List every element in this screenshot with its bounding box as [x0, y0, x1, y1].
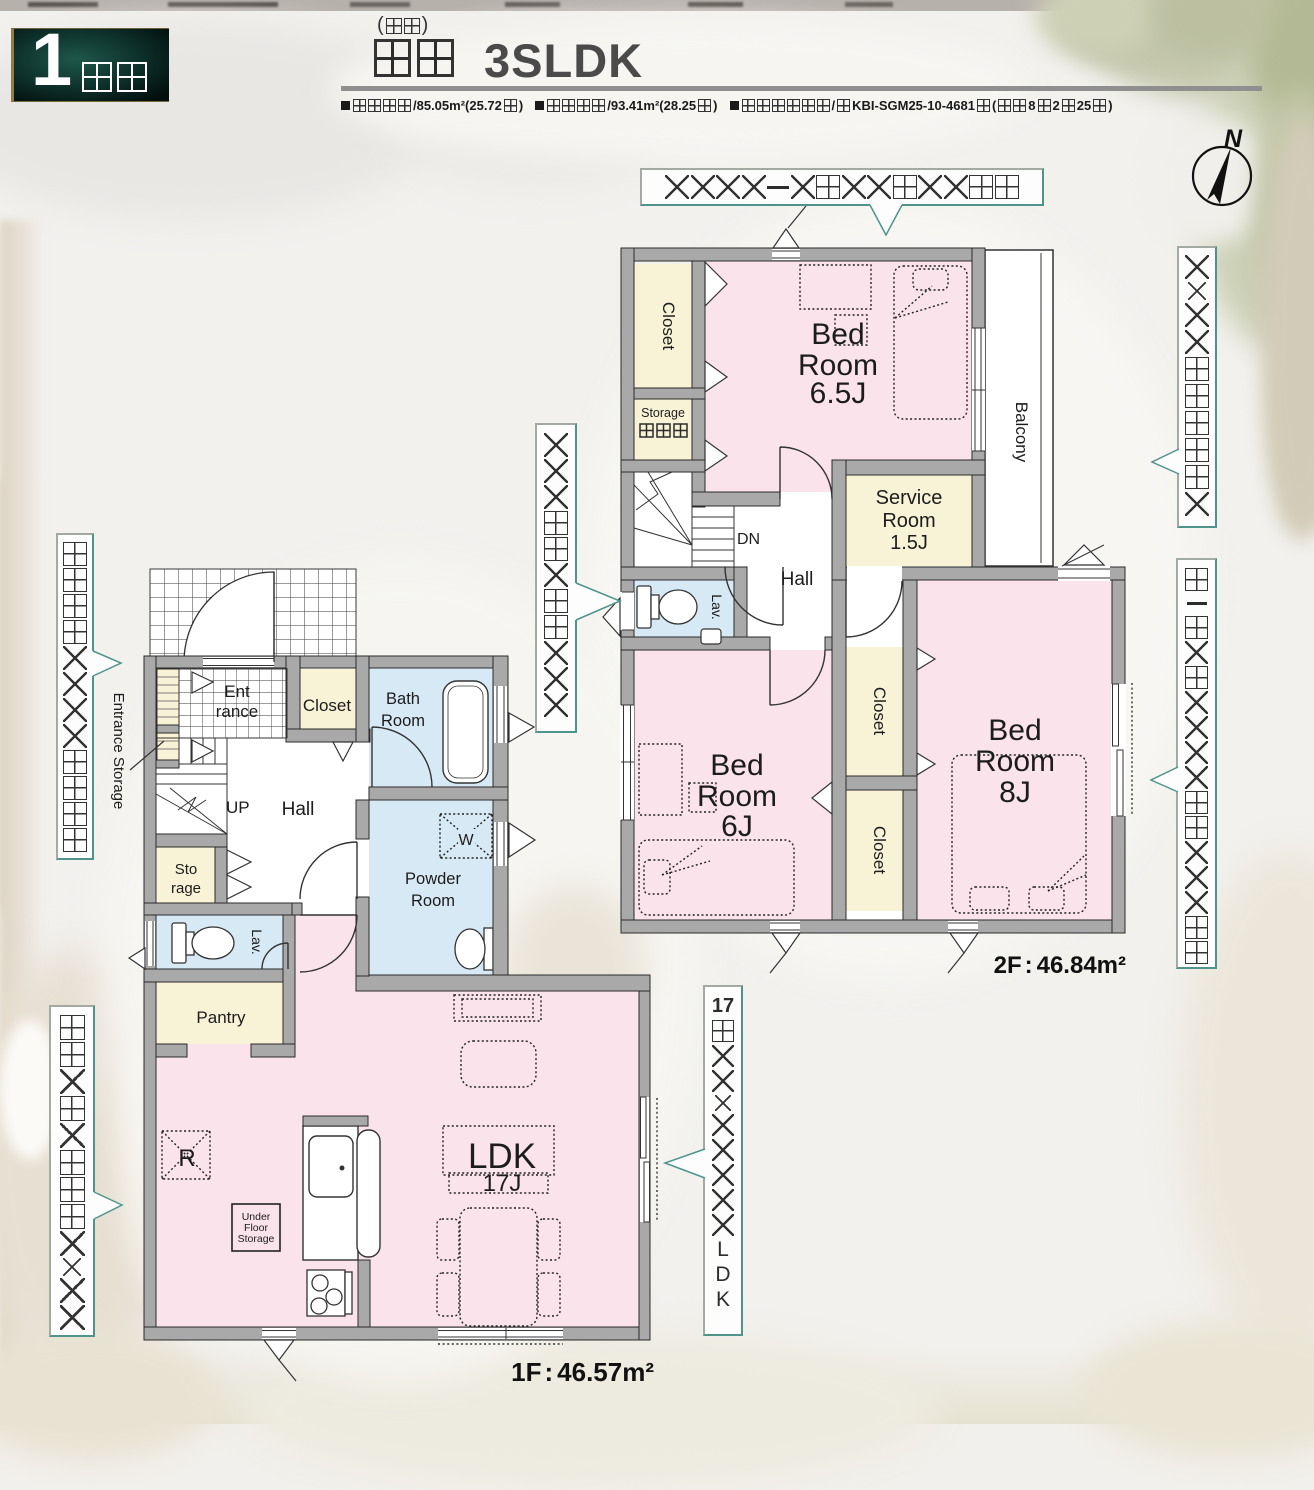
svg-text:Room: Room	[381, 712, 425, 730]
svg-text:R: R	[178, 1145, 195, 1172]
svg-text:6.5J: 6.5J	[810, 377, 867, 410]
svg-text:Room: Room	[975, 745, 1055, 778]
svg-text:Closet: Closet	[659, 302, 678, 350]
svg-text:Room: Room	[697, 780, 777, 813]
svg-text:1.5J: 1.5J	[890, 532, 928, 554]
svg-text:Storage: Storage	[238, 1233, 275, 1245]
svg-text:rage: rage	[171, 880, 201, 897]
svg-text:Lav.: Lav.	[249, 929, 265, 954]
svg-text:UP: UP	[226, 798, 250, 817]
svg-text:2F:46.84m²: 2F:46.84m²	[994, 952, 1126, 979]
svg-text:Room: Room	[411, 892, 455, 910]
svg-text:Bed: Bed	[988, 714, 1041, 747]
svg-text:Closet: Closet	[870, 687, 889, 735]
svg-text:Hall: Hall	[282, 799, 315, 820]
svg-text:Balcony: Balcony	[1012, 402, 1031, 463]
svg-text:Hall: Hall	[781, 569, 814, 590]
svg-text:Service: Service	[876, 487, 943, 509]
svg-text:Bath: Bath	[386, 690, 420, 708]
svg-text:6J: 6J	[721, 810, 753, 843]
svg-text:8J: 8J	[999, 776, 1031, 809]
svg-text:N: N	[1224, 125, 1243, 153]
svg-text:Bed: Bed	[710, 749, 763, 782]
svg-text:W: W	[458, 832, 474, 849]
svg-text:Sto: Sto	[175, 861, 198, 878]
svg-text:rance: rance	[216, 702, 259, 721]
svg-text:17J: 17J	[483, 1170, 522, 1197]
svg-text:Closet: Closet	[870, 826, 889, 874]
svg-text:Closet: Closet	[303, 696, 351, 715]
svg-text:Bed: Bed	[811, 318, 864, 351]
svg-text:DN: DN	[737, 531, 760, 548]
svg-text:Entrance Storage: Entrance Storage	[110, 693, 127, 810]
svg-text:1F:46.57m²: 1F:46.57m²	[511, 1357, 654, 1387]
svg-text:Lav.: Lav.	[709, 594, 725, 619]
svg-text:Pantry: Pantry	[196, 1008, 246, 1027]
svg-text:Powder: Powder	[405, 870, 461, 888]
svg-text:Ent: Ent	[224, 682, 250, 701]
svg-text:Room: Room	[882, 510, 935, 532]
svg-text:Storage: Storage	[641, 406, 685, 420]
